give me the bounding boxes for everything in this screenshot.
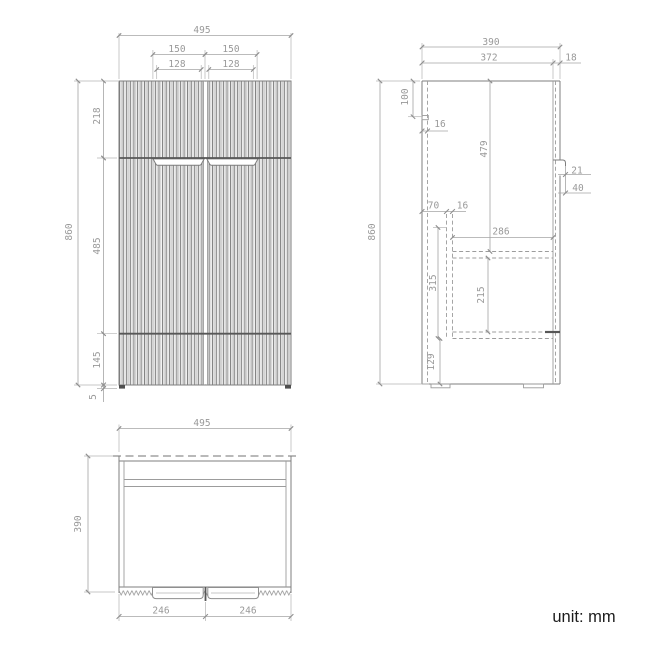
dim-plan-door-right: 246 xyxy=(239,606,256,617)
dim-front-width-total: 495 xyxy=(193,25,210,36)
dim-side-depth-total: 390 xyxy=(482,37,499,48)
handle-recess-right xyxy=(207,159,258,165)
dim-side-interior-depth: 286 xyxy=(492,227,509,238)
side-view: 390 372 18 860 100 16 479 21 40 70 16 28… xyxy=(367,37,591,388)
handle-groove-profile xyxy=(553,160,566,166)
side-foot-right xyxy=(524,384,544,388)
dim-front-recess-left: 128 xyxy=(168,59,185,70)
dim-side-height-total: 860 xyxy=(367,223,378,240)
dim-side-back-offset: 70 xyxy=(428,201,440,212)
dim-side-shelf-to-base: 215 xyxy=(476,286,487,303)
side-foot-left xyxy=(431,384,450,388)
shelf-hidden-upper xyxy=(453,252,554,259)
dim-plan-width-total: 495 xyxy=(193,418,210,429)
dim-side-door-thickness: 18 xyxy=(565,53,577,64)
technical-drawing: 495 150 150 128 128 218 860 485 145 5 xyxy=(0,0,650,650)
front-view-cabinet xyxy=(119,81,291,389)
drawing-page: 495 150 150 128 128 218 860 485 145 5 xyxy=(0,0,650,650)
dim-front-handles-to-plinth: 485 xyxy=(92,237,103,254)
dim-front-top-to-handles: 218 xyxy=(92,107,103,124)
plan-view-cabinet xyxy=(113,456,297,601)
plan-view: 495 390 246 246 xyxy=(73,418,297,621)
dim-side-carcass-depth: 372 xyxy=(480,53,497,64)
dim-side-top-to-shelf: 479 xyxy=(479,140,490,157)
dim-plan-door-left: 246 xyxy=(152,606,169,617)
foot-left xyxy=(119,385,125,389)
dim-side-panel-thickness: 16 xyxy=(434,119,446,130)
dim-front-foot-height: 5 xyxy=(88,394,99,400)
shelf-hidden-lower xyxy=(453,332,554,339)
dim-side-runner-height: 315 xyxy=(428,274,439,291)
dim-side-runner-thickness: 16 xyxy=(457,201,469,212)
dim-front-height-total: 860 xyxy=(64,223,75,240)
dim-front-handle-span-left: 150 xyxy=(168,44,185,55)
dim-side-top-offset: 100 xyxy=(400,88,411,105)
dim-plan-depth-total: 390 xyxy=(73,515,84,532)
dim-side-handle-groove: 40 xyxy=(572,183,584,194)
dim-front-plinth-height: 145 xyxy=(92,351,103,368)
handle-recess-left xyxy=(153,159,204,165)
dim-side-handle-lip: 21 xyxy=(571,166,583,177)
front-view: 495 150 150 128 128 218 860 485 145 5 xyxy=(64,25,291,402)
foot-right xyxy=(285,385,291,389)
dim-side-base-height: 129 xyxy=(426,353,437,370)
dim-front-handle-span-right: 150 xyxy=(222,44,239,55)
dim-front-recess-right: 128 xyxy=(222,59,239,70)
unit-note: unit: mm xyxy=(552,608,615,626)
